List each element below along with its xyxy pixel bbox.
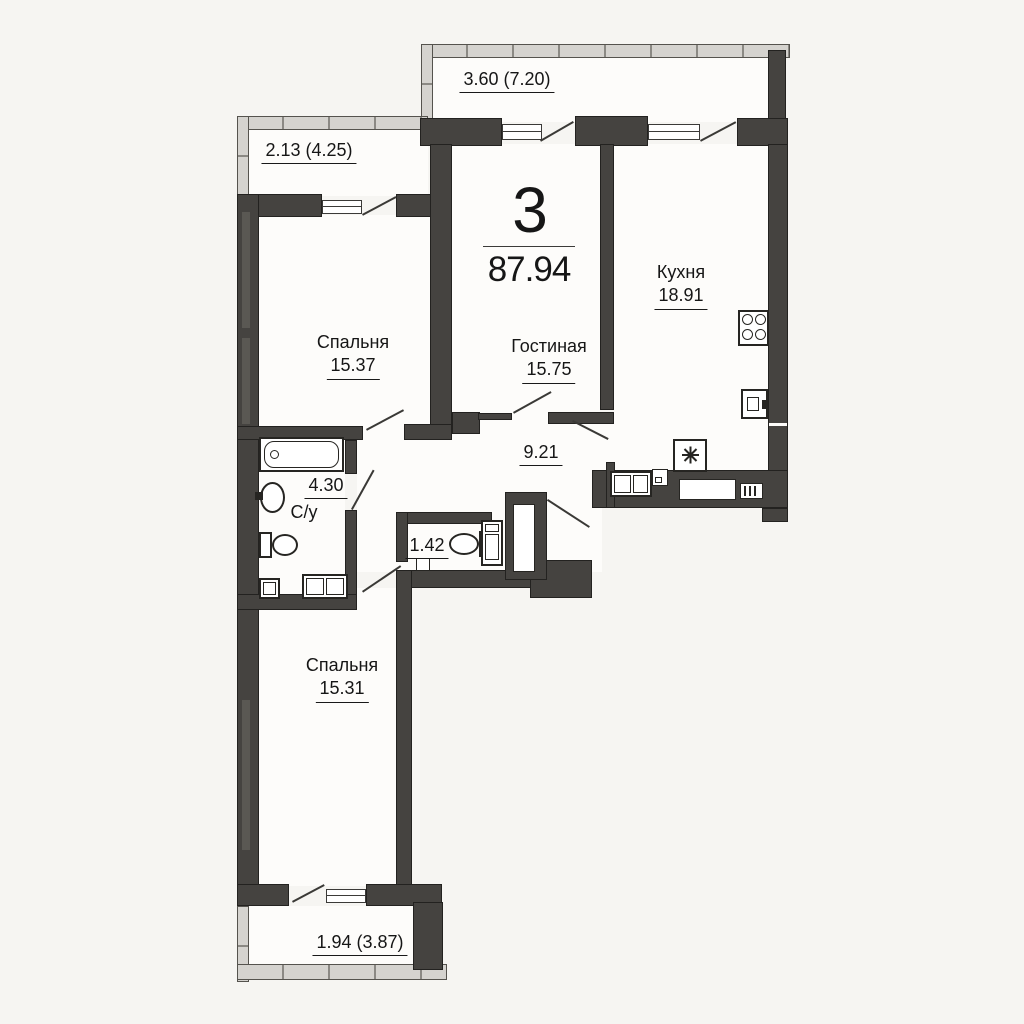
door-swing-icon [540,121,574,142]
room-floor-bedroom-top [259,215,430,428]
room-area: 9.21 [519,441,562,466]
room-name: Гостиная [511,335,587,358]
room-floor-bedroom-bottom [259,588,398,886]
wc-cabinet-inner [485,524,499,532]
apartment-rooms-count: 3 [483,178,575,242]
balcony-railing [237,116,428,130]
room-label-kitchen: Кухня 18.91 [654,261,707,310]
room-label-wc: 1.42 [405,534,448,559]
balcony-area: 2.13 (4.25) [261,139,356,164]
wall [768,50,786,124]
sink-icon [260,482,285,513]
window-pane [648,131,700,132]
room-label-bedroom-bottom: Спальня 15.31 [306,654,378,703]
sink-tap [255,492,263,500]
room-name: Кухня [654,261,707,284]
electrical-panel-bar [749,486,751,496]
wall [237,884,289,906]
stove-burner [755,314,766,325]
room-name: Спальня [306,654,378,677]
toilet-tank [259,532,272,558]
balcony-label-left: 2.13 (4.25) [261,139,356,164]
door-swing-icon [292,884,325,903]
wall-panel [242,212,250,328]
wall [396,512,492,524]
kitchen-counter-inner [633,475,648,493]
room-label-bathroom-name: С/у [291,501,318,524]
balcony-railing [237,116,249,196]
balcony-railing [421,44,790,58]
window-icon [502,124,542,140]
balcony-label-bottom: 1.94 (3.87) [312,931,407,956]
kitchen-sink-basin [747,397,759,411]
wall [762,508,788,522]
apartment-summary: 3 87.94 [483,178,575,287]
room-area: 4.30 [304,474,347,499]
door-swing-icon [700,121,736,142]
room-label-bathroom-area: 4.30 [304,474,347,499]
window-icon [322,200,362,214]
wall [413,902,443,970]
balcony-railing [421,44,433,120]
wall [404,424,452,440]
stove-burner [742,314,753,325]
cabinet-inner [306,578,324,595]
entry-niche [679,479,736,500]
wall-panel [242,700,250,850]
wall [600,144,614,410]
electrical-panel-bar [754,486,756,496]
door-swing-icon [362,196,396,216]
room-name: С/у [291,502,318,522]
wall [737,118,788,146]
wall-joint [769,423,787,426]
apartment-total-area: 87.94 [483,252,575,287]
room-label-bedroom-top: Спальня 15.37 [317,331,389,380]
balcony-label-top: 3.60 (7.20) [459,68,554,93]
toilet-icon [449,533,479,555]
room-area: 1.42 [405,534,448,559]
kitchen-appliance-inner [655,477,662,483]
room-label-living: Гостиная 15.75 [511,335,587,384]
stove-burner [742,329,753,340]
kitchen-counter-inner [614,475,631,493]
room-area: 15.31 [315,677,368,702]
wc-cabinet-inner [485,534,499,560]
room-area: 18.91 [654,284,707,309]
balcony-area: 3.60 (7.20) [459,68,554,93]
cabinet-inner [326,578,344,595]
window-icon [648,124,700,140]
floor-drain-icon [416,558,430,571]
wall [575,116,648,146]
window-icon [326,889,366,903]
wall [548,412,614,424]
kitchen-sink-tap [762,400,767,409]
floor-plan: 3 87.94 Кухня 18.91 Гостиная 15.75 Спаль… [0,0,1024,1024]
window-pane [326,895,366,896]
wall [430,144,452,440]
wall [420,118,502,146]
window-pane [502,131,542,132]
divider-line [483,246,575,247]
room-name: Спальня [317,331,389,354]
wall [345,440,357,474]
wall [452,412,480,434]
wall [396,570,412,892]
toilet-icon [272,534,298,556]
ventilation-shaft-icon [513,504,535,572]
balcony-area: 1.94 (3.87) [312,931,407,956]
stove-burner [755,329,766,340]
wall [478,413,512,420]
room-area: 15.37 [326,354,379,379]
room-label-hallway: 9.21 [519,441,562,466]
bathtub-drain [270,450,279,459]
electrical-panel-bar [744,486,746,496]
room-area: 15.75 [522,358,575,383]
wall-panel [242,338,250,424]
washing-machine-inner [263,582,276,595]
window-pane [322,206,362,207]
